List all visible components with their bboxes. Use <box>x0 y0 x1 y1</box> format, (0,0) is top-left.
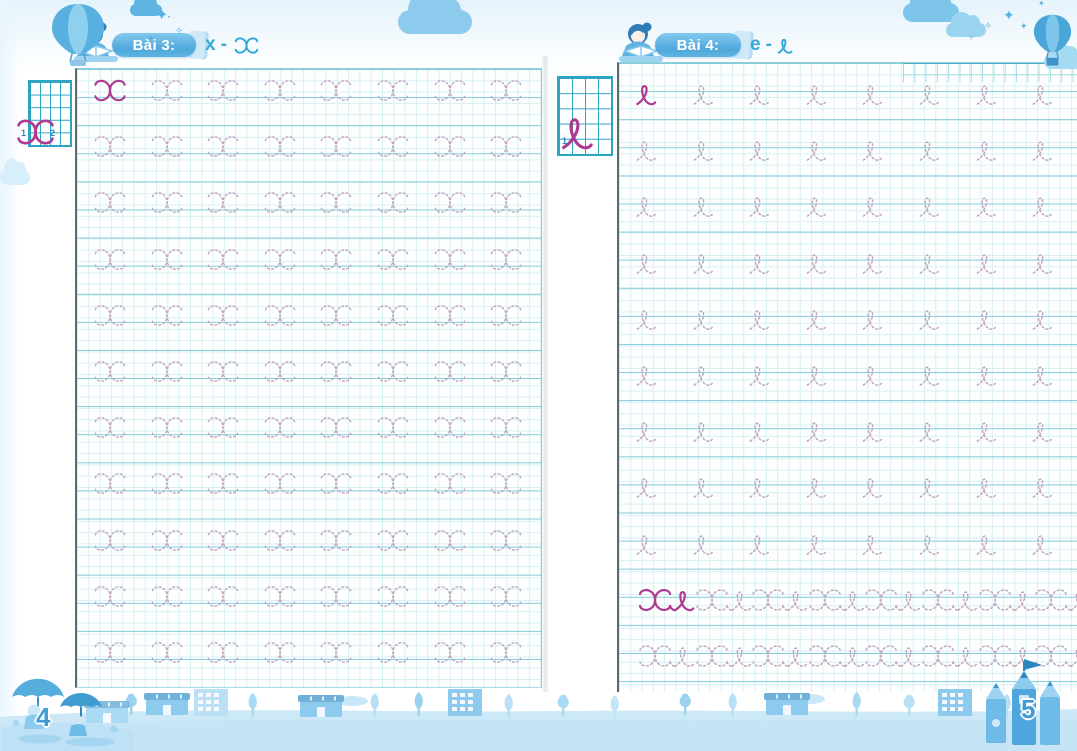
hot-air-balloon-icon <box>42 2 114 66</box>
trace-letter-x[interactable] <box>90 132 130 158</box>
practice-row <box>619 305 1077 331</box>
trace-letter-x[interactable] <box>486 413 526 439</box>
trace-letter-e[interactable] <box>918 249 940 275</box>
trace-letter-e[interactable] <box>692 530 714 556</box>
trace-letter-e[interactable] <box>635 136 657 162</box>
trace-letter-x[interactable] <box>260 357 300 383</box>
trace-letter-e[interactable] <box>748 530 770 556</box>
trace-letter-x[interactable] <box>373 245 413 271</box>
trace-letter-x[interactable] <box>203 357 243 383</box>
trace-letter-x[interactable] <box>203 76 243 102</box>
trace-letter-e[interactable] <box>635 305 657 331</box>
trace-letter-x[interactable] <box>203 132 243 158</box>
trace-letter-x[interactable] <box>373 357 413 383</box>
trace-letter-e[interactable] <box>861 136 883 162</box>
practice-row <box>77 526 541 552</box>
star-icon: ✦ <box>1038 0 1045 8</box>
bottom-town-decoration <box>0 655 1077 751</box>
trace-letter-e[interactable] <box>918 192 940 218</box>
trace-letter-e[interactable] <box>861 249 883 275</box>
cloud-icon <box>398 10 472 34</box>
trace-letter-x[interactable] <box>147 469 187 495</box>
pair-cursive-x-glyph <box>232 37 261 54</box>
trace-letter-x[interactable] <box>486 357 526 383</box>
practice-row <box>77 245 541 271</box>
trace-letter-x[interactable] <box>90 526 130 552</box>
practice-row <box>619 136 1077 162</box>
trace-letter-x[interactable] <box>147 526 187 552</box>
trace-letter-x[interactable] <box>316 188 356 214</box>
trace-letter-x[interactable] <box>373 469 413 495</box>
practice-row <box>77 188 541 214</box>
practice-row <box>77 469 541 495</box>
trace-letter-x[interactable] <box>373 188 413 214</box>
trace-letter-e[interactable] <box>692 361 714 387</box>
trace-letter-xe[interactable] <box>861 586 923 612</box>
trace-letter-e[interactable] <box>918 530 940 556</box>
practice-row <box>619 80 1077 106</box>
lesson-letter-pair: e - <box>750 33 793 57</box>
trace-letter-x[interactable] <box>260 76 300 102</box>
trace-letter-e[interactable] <box>861 417 883 443</box>
trace-letter-x[interactable] <box>373 76 413 102</box>
page-number: 4 <box>36 702 50 733</box>
trace-letter-e[interactable] <box>1031 473 1053 499</box>
trace-letter-x[interactable] <box>486 301 526 327</box>
trace-letter-x[interactable] <box>486 526 526 552</box>
star-dot-icon: • <box>168 15 170 21</box>
trace-letter-e[interactable] <box>975 192 997 218</box>
trace-letter-x[interactable] <box>260 188 300 214</box>
trace-letter-e[interactable] <box>635 192 657 218</box>
star-icon: ✦ <box>1020 22 1028 31</box>
practice-grid-left[interactable] <box>75 68 542 688</box>
trace-letter-e[interactable] <box>635 530 657 556</box>
trace-letter-xe[interactable] <box>692 586 754 612</box>
trace-letter-x[interactable] <box>316 245 356 271</box>
trace-letter-e[interactable] <box>918 136 940 162</box>
trace-letter-e[interactable] <box>748 249 770 275</box>
star-icon: ✧ <box>984 22 992 32</box>
trace-letter-e[interactable] <box>748 136 770 162</box>
practice-grid-right[interactable] <box>617 62 1077 692</box>
trace-letter-e[interactable] <box>805 136 827 162</box>
practice-row <box>77 582 541 608</box>
trace-letter-x[interactable] <box>147 76 187 102</box>
trace-letter-x[interactable] <box>90 413 130 439</box>
star-icon: ✦ <box>155 8 168 24</box>
model-letter-e[interactable] <box>635 80 657 106</box>
trace-letter-x[interactable] <box>147 582 187 608</box>
trace-letter-x[interactable] <box>430 301 470 327</box>
trace-letter-x[interactable] <box>90 582 130 608</box>
trace-letter-e[interactable] <box>861 473 883 499</box>
trace-letter-x[interactable] <box>90 245 130 271</box>
trace-letter-e[interactable] <box>692 192 714 218</box>
trace-letter-e[interactable] <box>748 417 770 443</box>
trace-letter-x[interactable] <box>260 526 300 552</box>
trace-letter-e[interactable] <box>692 305 714 331</box>
trace-letter-e[interactable] <box>805 530 827 556</box>
trace-letter-x[interactable] <box>373 526 413 552</box>
trace-letter-x[interactable] <box>486 469 526 495</box>
trace-letter-xe[interactable] <box>918 586 980 612</box>
stroke-number: 2 <box>50 128 55 138</box>
cloud-icon <box>0 170 30 185</box>
trace-letter-e[interactable] <box>918 305 940 331</box>
star-icon: ✦ <box>147 34 155 43</box>
trace-letter-xe[interactable] <box>1031 586 1077 612</box>
trace-letter-x[interactable] <box>203 582 243 608</box>
trace-letter-x[interactable] <box>316 469 356 495</box>
lesson-banner: Bài 4: <box>655 33 741 57</box>
trace-letter-x[interactable] <box>260 245 300 271</box>
trace-letter-e[interactable] <box>805 80 827 106</box>
practice-row <box>77 132 541 158</box>
trace-letter-e[interactable] <box>692 473 714 499</box>
trace-letter-e[interactable] <box>975 473 997 499</box>
star-icon: ✧ <box>175 27 183 37</box>
trace-letter-x[interactable] <box>486 132 526 158</box>
trace-letter-xe[interactable] <box>748 586 810 612</box>
trace-letter-x[interactable] <box>260 132 300 158</box>
trace-letter-x[interactable] <box>373 132 413 158</box>
star-icon: ✦ <box>1003 8 1015 22</box>
trace-letter-e[interactable] <box>975 530 997 556</box>
trace-letter-e[interactable] <box>1031 361 1053 387</box>
trace-letter-x[interactable] <box>316 526 356 552</box>
trace-letter-x[interactable] <box>90 301 130 327</box>
trace-letter-e[interactable] <box>1031 136 1053 162</box>
trace-letter-xe[interactable] <box>805 586 867 612</box>
model-letter-x[interactable] <box>90 76 130 102</box>
trace-letter-x[interactable] <box>147 301 187 327</box>
trace-letter-e[interactable] <box>635 249 657 275</box>
trace-letter-x[interactable] <box>430 469 470 495</box>
trace-letter-x[interactable] <box>203 245 243 271</box>
trace-letter-x[interactable] <box>430 526 470 552</box>
trace-letter-e[interactable] <box>1031 192 1053 218</box>
example-box-e: 1 <box>557 76 613 156</box>
trace-letter-x[interactable] <box>147 132 187 158</box>
trace-letter-e[interactable] <box>918 417 940 443</box>
trace-letter-e[interactable] <box>748 305 770 331</box>
practice-row <box>619 530 1077 556</box>
practice-row <box>619 361 1077 387</box>
trace-letter-e[interactable] <box>918 473 940 499</box>
star-icon: ✧ <box>968 34 975 42</box>
practice-row <box>77 413 541 439</box>
cloud-icon <box>946 23 986 37</box>
trace-letter-e[interactable] <box>805 473 827 499</box>
trace-letter-e[interactable] <box>918 80 940 106</box>
trace-letter-e[interactable] <box>1031 305 1053 331</box>
practice-row <box>619 417 1077 443</box>
trace-letter-e[interactable] <box>748 192 770 218</box>
workbook-spread: Bài 3: x - 1 2 Bài 4: e - <box>0 0 1077 751</box>
trace-letter-x[interactable] <box>203 188 243 214</box>
trace-letter-e[interactable] <box>635 417 657 443</box>
page-fold-shadow <box>541 56 549 692</box>
hot-air-balloon-icon <box>1028 8 1077 74</box>
pair-print-letter: x <box>205 34 216 56</box>
pair-cursive-e-glyph <box>777 37 793 54</box>
trace-letter-x[interactable] <box>316 357 356 383</box>
trace-letter-x[interactable] <box>90 188 130 214</box>
trace-letter-x[interactable] <box>430 357 470 383</box>
trace-letter-e[interactable] <box>805 192 827 218</box>
trace-letter-e[interactable] <box>805 417 827 443</box>
trace-letter-x[interactable] <box>486 245 526 271</box>
trace-letter-x[interactable] <box>203 301 243 327</box>
trace-letter-x[interactable] <box>486 582 526 608</box>
trace-letter-x[interactable] <box>486 188 526 214</box>
trace-letter-x[interactable] <box>260 413 300 439</box>
practice-row <box>619 473 1077 499</box>
practice-row <box>77 76 541 102</box>
pair-print-letter: e <box>750 34 761 56</box>
pair-dash: - <box>766 34 772 56</box>
trace-letter-e[interactable] <box>1031 530 1053 556</box>
trace-letter-x[interactable] <box>147 188 187 214</box>
trace-letter-e[interactable] <box>975 80 997 106</box>
trace-letter-x[interactable] <box>203 469 243 495</box>
trace-letter-x[interactable] <box>316 76 356 102</box>
trace-letter-xe[interactable] <box>975 586 1037 612</box>
practice-row <box>619 249 1077 275</box>
trace-letter-e[interactable] <box>861 80 883 106</box>
trace-letter-x[interactable] <box>430 76 470 102</box>
practice-row <box>619 586 1077 612</box>
example-box-x: 1 2 <box>28 80 72 147</box>
trace-letter-x[interactable] <box>260 301 300 327</box>
trace-letter-x[interactable] <box>316 413 356 439</box>
trace-letter-e[interactable] <box>805 305 827 331</box>
trace-letter-x[interactable] <box>373 582 413 608</box>
trace-letter-e[interactable] <box>975 249 997 275</box>
trace-letter-e[interactable] <box>1031 80 1053 106</box>
model-letter-xe[interactable] <box>635 586 697 612</box>
trace-letter-e[interactable] <box>635 361 657 387</box>
example-letter-e <box>560 111 594 153</box>
trace-letter-x[interactable] <box>430 582 470 608</box>
trace-letter-e[interactable] <box>861 361 883 387</box>
trace-letter-e[interactable] <box>1031 417 1053 443</box>
trace-letter-e[interactable] <box>805 361 827 387</box>
trace-letter-x[interactable] <box>316 582 356 608</box>
pair-dash: - <box>221 34 227 56</box>
trace-letter-x[interactable] <box>203 413 243 439</box>
trace-letter-x[interactable] <box>147 357 187 383</box>
trace-letter-x[interactable] <box>260 469 300 495</box>
trace-letter-e[interactable] <box>692 249 714 275</box>
trace-letter-e[interactable] <box>1031 249 1053 275</box>
stroke-number: 1 <box>562 136 567 146</box>
trace-letter-e[interactable] <box>861 530 883 556</box>
trace-letter-x[interactable] <box>373 301 413 327</box>
trace-letter-e[interactable] <box>861 305 883 331</box>
trace-letter-x[interactable] <box>203 526 243 552</box>
trace-letter-e[interactable] <box>918 361 940 387</box>
trace-letter-x[interactable] <box>430 245 470 271</box>
trace-letter-x[interactable] <box>486 76 526 102</box>
trace-letter-e[interactable] <box>635 473 657 499</box>
trace-letter-e[interactable] <box>692 136 714 162</box>
trace-letter-x[interactable] <box>373 413 413 439</box>
trace-letter-e[interactable] <box>975 417 997 443</box>
trace-letter-x[interactable] <box>316 132 356 158</box>
trace-letter-x[interactable] <box>430 132 470 158</box>
trace-letter-e[interactable] <box>692 80 714 106</box>
lesson-letter-pair: x - <box>205 33 261 57</box>
star-icon: ✧ <box>186 43 193 51</box>
trace-letter-e[interactable] <box>975 136 997 162</box>
stroke-number: 1 <box>21 128 26 138</box>
practice-row <box>77 357 541 383</box>
practice-row <box>619 192 1077 218</box>
trace-letter-e[interactable] <box>748 80 770 106</box>
trace-letter-e[interactable] <box>748 473 770 499</box>
trace-letter-x[interactable] <box>430 413 470 439</box>
trace-letter-x[interactable] <box>147 245 187 271</box>
trace-letter-x[interactable] <box>316 301 356 327</box>
trace-letter-e[interactable] <box>975 305 997 331</box>
trace-letter-x[interactable] <box>430 188 470 214</box>
trace-letter-x[interactable] <box>90 469 130 495</box>
trace-letter-x[interactable] <box>147 413 187 439</box>
trace-letter-e[interactable] <box>975 361 997 387</box>
practice-row <box>77 301 541 327</box>
trace-letter-e[interactable] <box>861 192 883 218</box>
trace-letter-e[interactable] <box>805 249 827 275</box>
page-edge-tint <box>0 0 20 751</box>
trace-letter-e[interactable] <box>748 361 770 387</box>
trace-letter-e[interactable] <box>692 417 714 443</box>
page-number: 5 <box>1021 694 1035 725</box>
trace-letter-x[interactable] <box>90 357 130 383</box>
trace-letter-x[interactable] <box>260 582 300 608</box>
